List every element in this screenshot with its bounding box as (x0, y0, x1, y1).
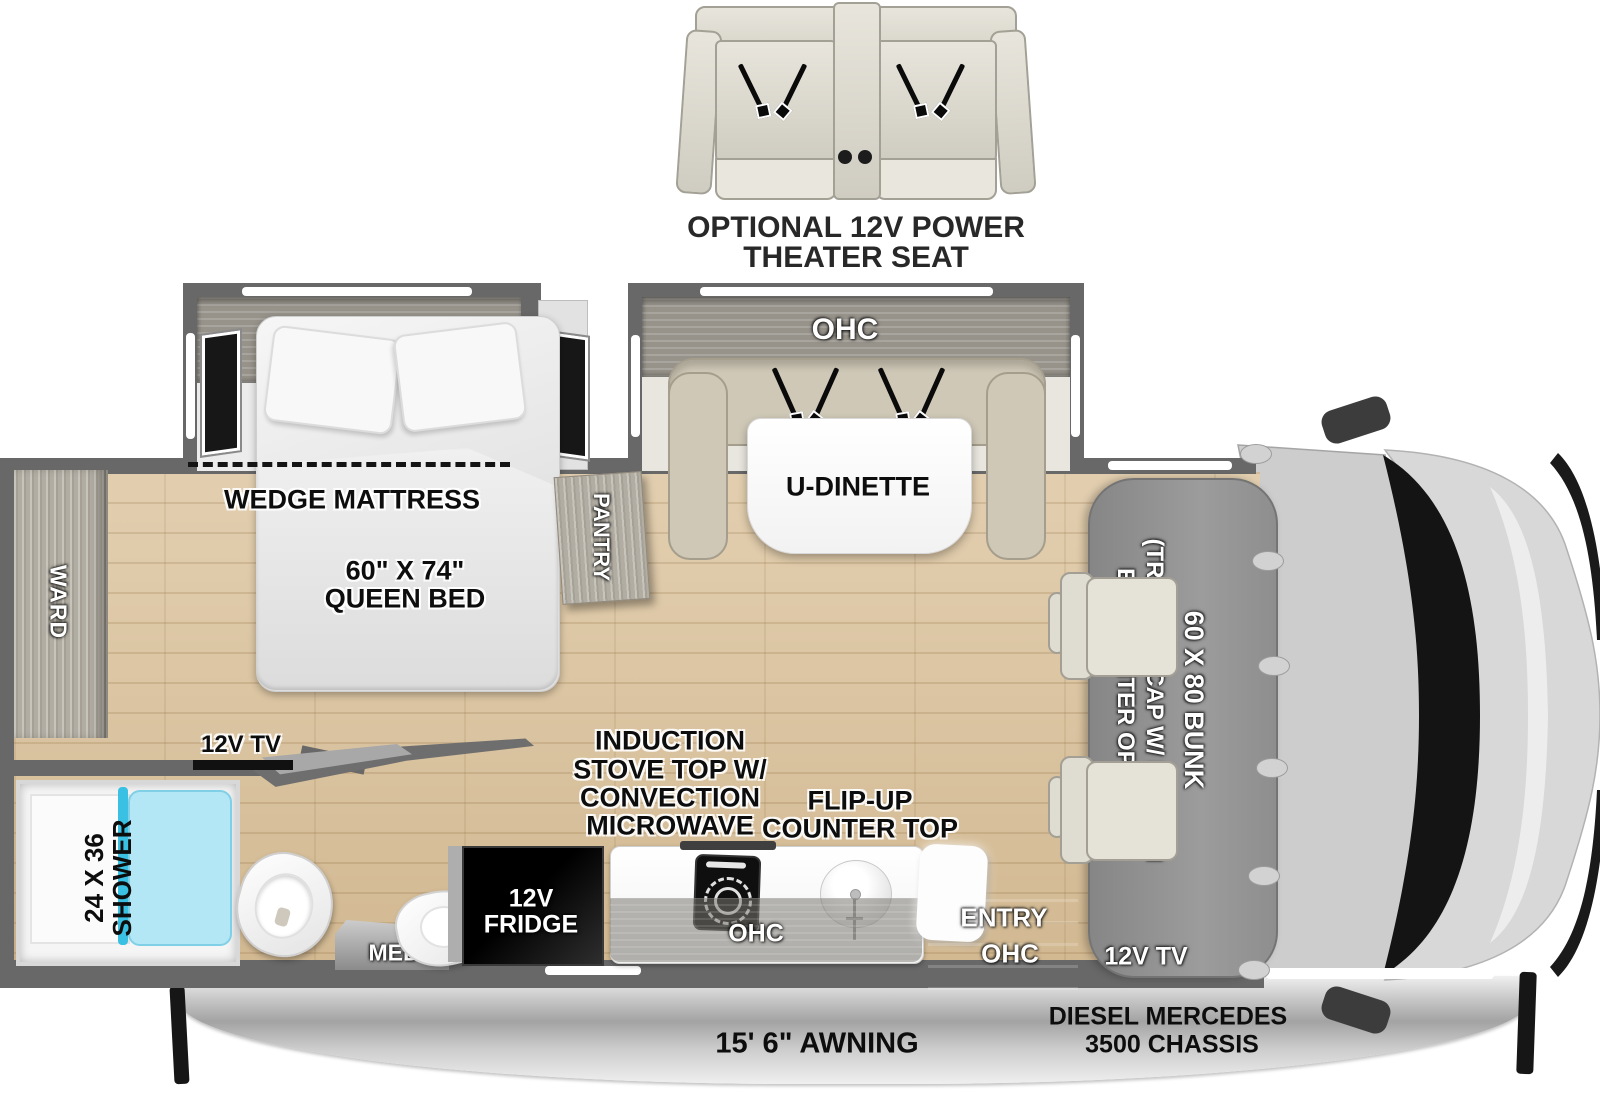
queen-bed-label-line1: 60" X 74" (346, 556, 465, 587)
appliance-label-line1: INDUCTION (595, 726, 745, 757)
dinette-ohc-label: OHC (812, 313, 879, 347)
clearance-bump (1248, 866, 1280, 886)
window-under-cab (1266, 968, 1494, 979)
bedroom-slide-window-top (242, 287, 472, 296)
appliance-label-line4: MICROWAVE (586, 811, 754, 842)
theater-seat-footrest-left (715, 158, 837, 200)
theater-seat-cushion-right (875, 40, 997, 162)
window-kitchen (545, 966, 641, 975)
clearance-bump (1258, 656, 1290, 676)
cup-holder-icon (838, 150, 852, 164)
wall-rear-left (0, 458, 14, 980)
driver-seat-cushion (1086, 577, 1178, 677)
theater-seat-footrest-right (875, 158, 997, 200)
flip-up-label-line2: COUNTER TOP (762, 814, 958, 845)
theater-seat-label-line2: THEATER SEAT (743, 241, 969, 275)
mirror-right (1318, 983, 1393, 1036)
kitchen-ohc-label: OHC (728, 920, 784, 949)
dinette-slide-window-right (1071, 335, 1080, 437)
dinette-slide-window-top (700, 287, 993, 296)
theater-seat-cushion-left (715, 40, 837, 162)
queen-bed-label-line2: QUEEN BED (325, 584, 486, 615)
bedroom-slide-window-left (186, 333, 195, 439)
clearance-bump (1240, 444, 1272, 464)
theater-seat-label-line1: OPTIONAL 12V POWER (687, 211, 1025, 245)
shower-label: 24 X 36 SHOWER (80, 820, 136, 937)
awning-label: 15' 6" AWNING (715, 1028, 918, 1061)
shower-size-label: 24 X 36 (80, 820, 108, 937)
bedroom-tv-label: 12V TV (201, 731, 281, 759)
appliance-label-line3: CONVECTION (580, 783, 760, 814)
bed-pillow-right (392, 321, 527, 433)
passenger-seat-cushion (1086, 761, 1178, 861)
shower-glass-door (128, 790, 232, 946)
shower-word-label: SHOWER (108, 820, 136, 937)
dinette-slide-window-left (631, 335, 640, 437)
wedge-fold-line (188, 462, 510, 467)
bunk-size-label: 60 X 80 BUNK (1178, 538, 1210, 861)
entry-label: ENTRY (960, 903, 1047, 934)
flip-up-label-line1: FLIP-UP (808, 786, 913, 817)
entry-ohc-label: OHC (981, 939, 1039, 970)
appliance-label-line2: STOVE TOP W/ (573, 755, 767, 786)
pantry-label: PANTRY (588, 493, 614, 581)
window-top-right (1108, 461, 1232, 470)
rv-floorplan: 15' 6" AWNING DIESEL MERCEDES 3500 CHASS… (0, 0, 1600, 1109)
wedge-mattress-label: WEDGE MATTRESS (224, 485, 480, 516)
dinette-label: U-DINETTE (786, 472, 930, 503)
dinette-bench-arm-right (986, 372, 1046, 560)
bed-pillow-left (263, 324, 403, 435)
cup-holder-icon (858, 150, 872, 164)
clearance-bump (1252, 551, 1284, 571)
bunk-tv-label: 12V TV (1104, 943, 1187, 972)
dinette-bench-arm-left (668, 372, 728, 560)
mirror-left (1318, 395, 1393, 447)
fridge-label-line2: FRIDGE (484, 911, 578, 940)
bedroom-tv-screen (193, 760, 293, 770)
wardrobe-label: WARD (45, 565, 72, 639)
theater-seat-console (833, 2, 881, 200)
bedroom-window-pane-left (202, 330, 240, 455)
clearance-bump (1256, 758, 1288, 778)
fridge-label-line1: 12V (509, 885, 553, 914)
clearance-bump (1238, 960, 1270, 980)
